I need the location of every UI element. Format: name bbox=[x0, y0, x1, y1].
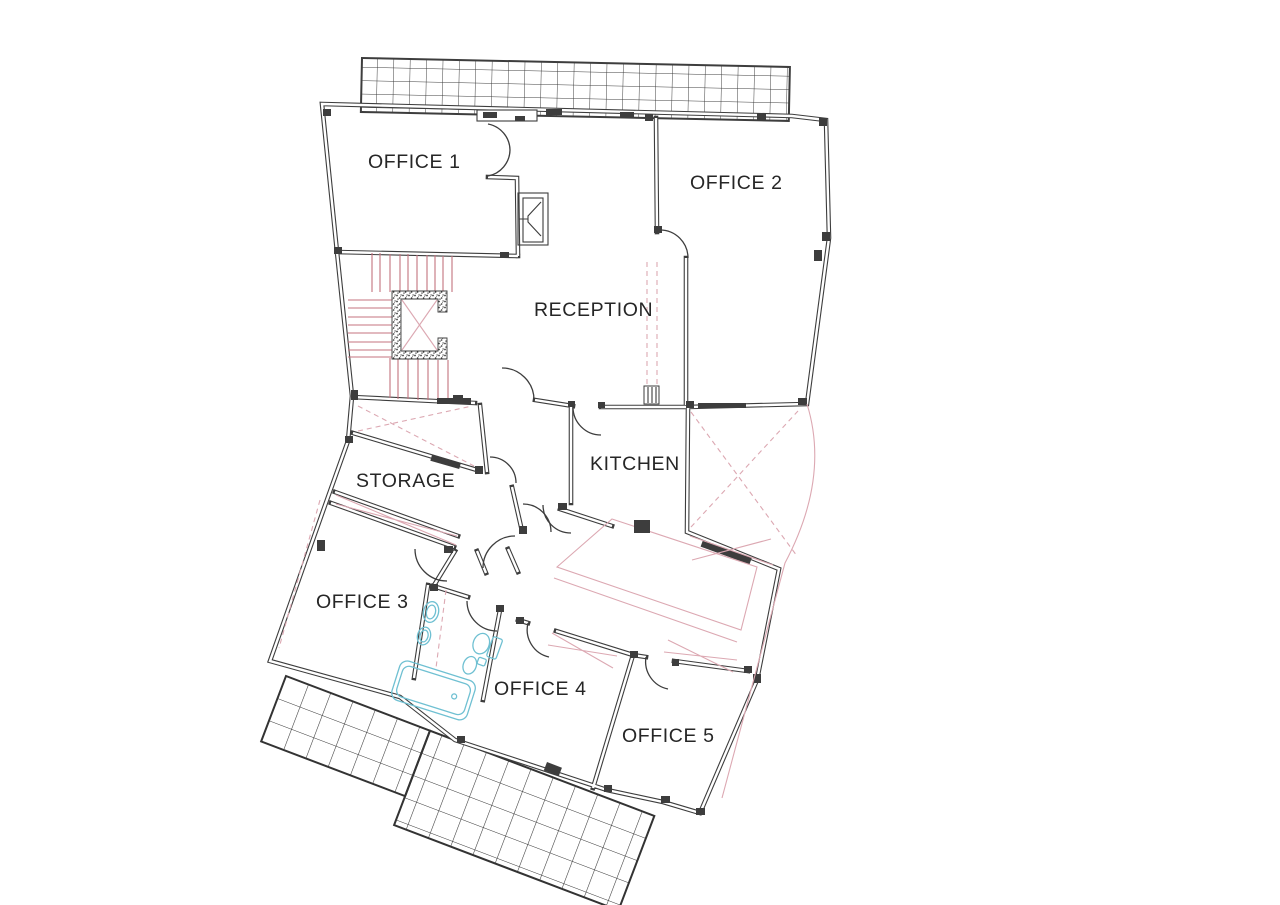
elevator-shaft bbox=[518, 193, 548, 245]
door-jambs bbox=[317, 109, 830, 815]
office5-door-arc bbox=[646, 657, 668, 689]
kitchen-door-arc bbox=[573, 407, 601, 435]
office2-door-arc bbox=[660, 230, 688, 258]
kitchen-column bbox=[634, 520, 650, 533]
room-label-kitchen: KITCHEN bbox=[590, 453, 680, 475]
office1-double-door-arc bbox=[488, 124, 510, 176]
room-label-reception: RECEPTION bbox=[534, 299, 653, 321]
staircase bbox=[348, 253, 452, 401]
office4-door-arc bbox=[527, 623, 549, 657]
bathroom-fixtures bbox=[390, 600, 503, 722]
corridor-counter-outline bbox=[554, 519, 757, 642]
floor-plan-scan: OFFICE 1 OFFICE 2 RECEPTION KITCHEN STOR… bbox=[0, 0, 1280, 905]
room-label-office2: OFFICE 2 bbox=[690, 172, 783, 194]
right-terrace-cross bbox=[691, 411, 798, 556]
room-label-office3: OFFICE 3 bbox=[316, 591, 409, 613]
room-label-office5: OFFICE 5 bbox=[622, 725, 715, 747]
stair-core-cross bbox=[402, 300, 437, 350]
floor-plan-drawing: OFFICE 1 OFFICE 2 RECEPTION KITCHEN STOR… bbox=[0, 0, 1280, 905]
storage-wall-cross bbox=[336, 495, 457, 545]
balcony-edge-curve bbox=[722, 404, 815, 798]
toilet bbox=[470, 631, 503, 660]
bidet bbox=[461, 653, 487, 679]
bathroom-plumbing-line bbox=[436, 590, 446, 668]
room-label-storage: STORAGE bbox=[356, 470, 455, 492]
storage-lobby-door-arc bbox=[490, 457, 516, 483]
hatched-wall-stub bbox=[644, 386, 659, 404]
bathtub bbox=[390, 659, 478, 722]
room-label-office4: OFFICE 4 bbox=[494, 678, 587, 700]
reception-door-arc bbox=[502, 368, 534, 400]
office3-wall-line bbox=[279, 500, 320, 648]
terrace-wall-cross bbox=[690, 536, 773, 565]
bathroom-door-arc bbox=[467, 601, 497, 631]
room-label-office1: OFFICE 1 bbox=[368, 151, 461, 173]
lobby-cross-mark bbox=[358, 406, 474, 466]
removed-wall-dashed bbox=[647, 262, 657, 384]
corridor-door-arc-b bbox=[523, 504, 551, 532]
entry-niche bbox=[477, 110, 537, 121]
